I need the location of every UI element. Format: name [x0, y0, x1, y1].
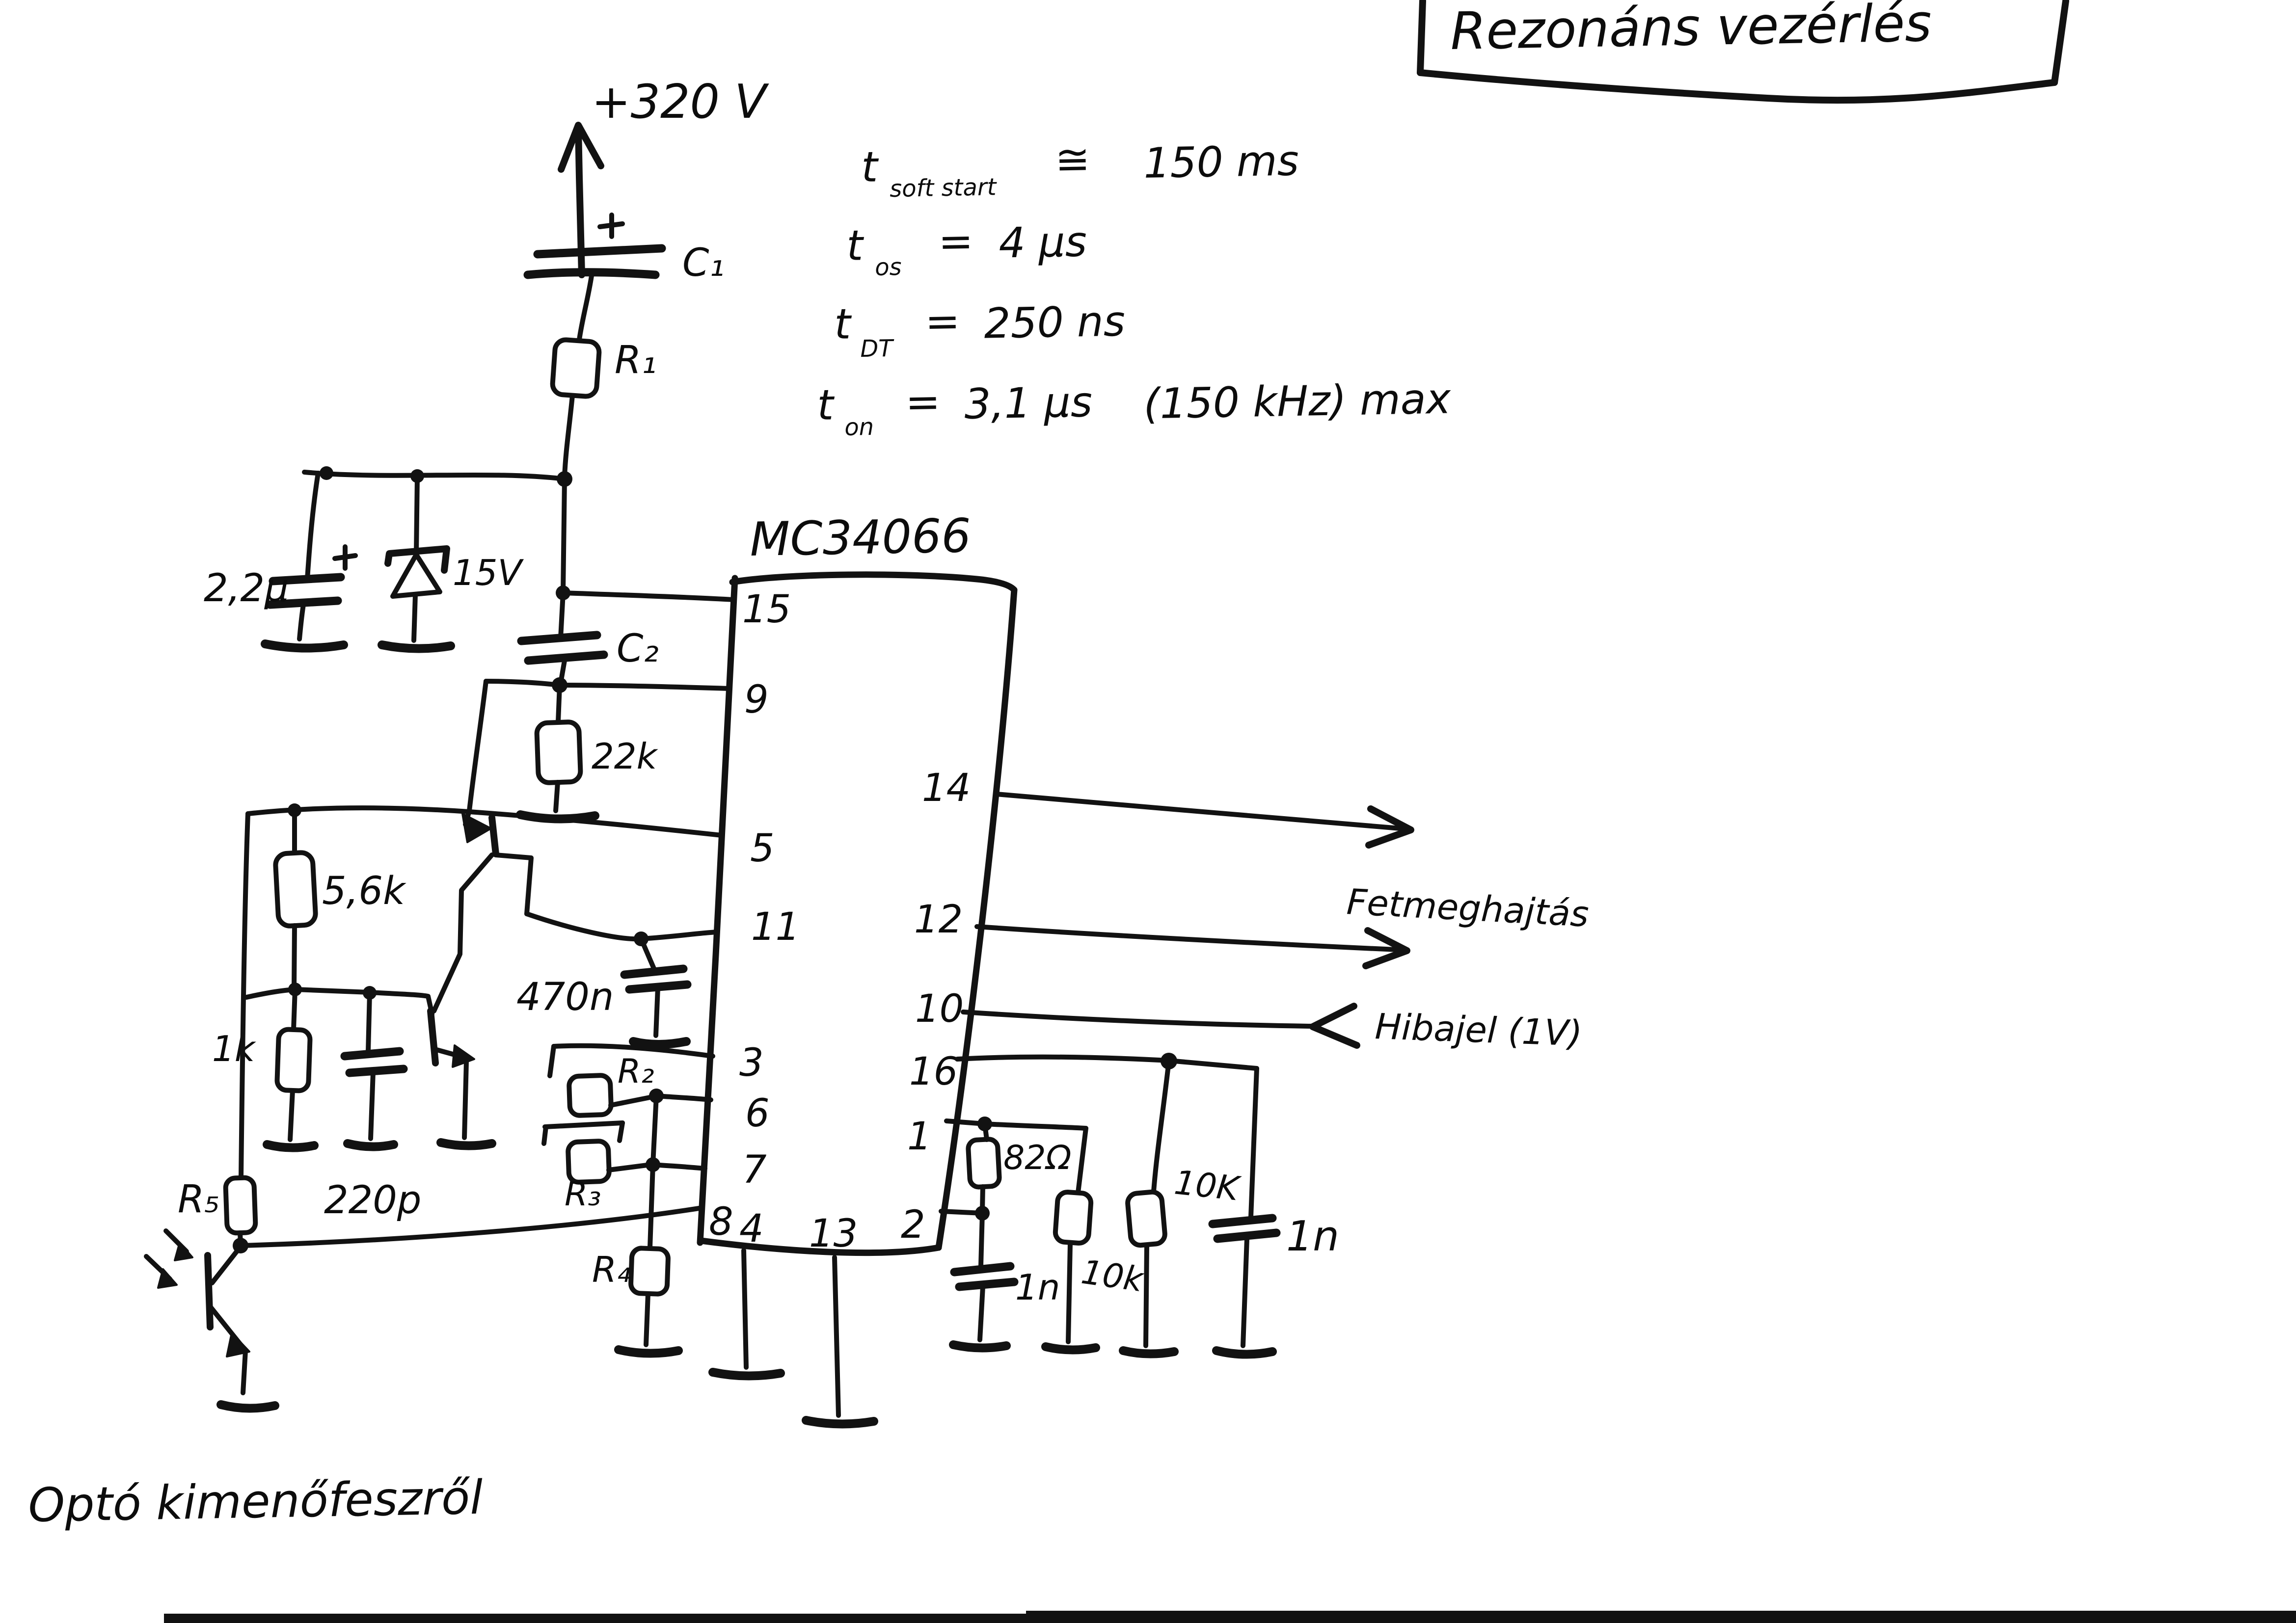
wire-zener-gnd [414, 595, 415, 640]
wire-22k-gnd [556, 782, 558, 811]
r1k-label: 1k [212, 1028, 257, 1069]
q1-collector-zig [496, 855, 531, 914]
wire-10ka-top [1078, 1128, 1086, 1193]
pin-label-7: 7 [742, 1148, 767, 1192]
wire-56k-bottom [294, 926, 295, 988]
resistor-10k-a [1055, 1192, 1092, 1244]
left-arrow-icon [1313, 1006, 1357, 1045]
pin-label-3: 3 [739, 1041, 764, 1085]
pin-label-2: 2 [901, 1203, 925, 1247]
wire-1k-gnd [290, 1091, 293, 1140]
note-dead-time: t DT = 250 ns [834, 294, 1126, 363]
ground-icon [713, 1372, 781, 1376]
wire-pin16 [957, 1057, 1257, 1068]
note1-subscript: soft start [890, 173, 998, 203]
ground-icon [267, 1144, 314, 1148]
wire-pin12-out [977, 927, 1397, 950]
cap220p-plate-top [345, 1051, 400, 1056]
note4-extra: (150 kHz) max [1143, 374, 1452, 428]
ground-icon [348, 1144, 394, 1147]
pin-label-1: 1 [907, 1115, 932, 1159]
r5-label: R₅ [178, 1177, 219, 1222]
r56k-label: 5,6k [322, 869, 406, 913]
wire-cap22-gnd [299, 605, 303, 639]
error-signal-label: Hibajel (1V) [1374, 1006, 1583, 1054]
timing-notes: t soft start ≅ 150 ms t os = 4 μs t DT =… [817, 132, 1452, 442]
wire-1na-gnd [980, 1287, 983, 1340]
wire-pin9 [560, 685, 730, 689]
aux-supply-branch: 2,2μ 15V [204, 466, 565, 649]
resistor-10k-b [1127, 1191, 1166, 1246]
r22k-label: 22k [592, 736, 659, 777]
r10kb-label: 10K [1172, 1163, 1243, 1209]
wire-10kb-top [1154, 1061, 1169, 1192]
wire-pin14-out [997, 794, 1400, 828]
r82-label: 82Ω [1003, 1139, 1072, 1177]
wire-cap22-top [307, 473, 318, 579]
cap22-label: 2,2μ [204, 566, 289, 611]
wire-1nb-top [1251, 1068, 1257, 1217]
note4-operator: = [905, 378, 941, 427]
wire-r1-node [565, 396, 572, 477]
wire-r4-top [650, 1165, 653, 1248]
wire-10ka-gnd [1068, 1244, 1070, 1342]
c1-plate-top [538, 248, 662, 254]
pin-label-14: 14 [922, 766, 971, 810]
wire-node-q1 [486, 681, 560, 685]
note2-value: 4 μs [999, 217, 1087, 267]
c2-plate-top [521, 635, 597, 641]
ic-box-left [700, 578, 735, 1243]
pin-label-10: 10 [915, 987, 964, 1031]
note2-operator: = [938, 217, 974, 266]
c2-branch: C₂ 22k [520, 627, 659, 819]
pin-label-13: 13 [809, 1212, 858, 1256]
c220p-label: 220p [324, 1178, 421, 1223]
pin-label-6: 6 [745, 1091, 770, 1136]
wire-220p-top [368, 993, 370, 1051]
ground-icon [619, 1350, 678, 1354]
q2-emitter-arrow-icon [453, 1045, 474, 1067]
wire-pin7 [653, 1165, 705, 1169]
ground-icon [441, 1143, 492, 1146]
r10ka-label: 10k [1079, 1253, 1147, 1300]
fet-drive-label: Fetmeghajtás [1346, 881, 1590, 935]
oscillator-rc-cluster: 1n 10K 10k 82Ω 1n [941, 1053, 1339, 1355]
cap1nb-plate-top [1213, 1218, 1272, 1224]
wire-470n-gnd [656, 987, 658, 1036]
wire-q1-q2 [434, 855, 492, 1011]
r4-label: R₄ [592, 1249, 631, 1290]
pin-label-8: 8 [709, 1200, 733, 1244]
ic-ground-pins [713, 1251, 874, 1424]
wire-1na-top [981, 1213, 982, 1266]
plus-icon [335, 547, 355, 568]
wire-q2-gnd [464, 1061, 466, 1138]
note-soft-start: t soft start ≅ 150 ms [861, 132, 1299, 203]
resistor-22k [537, 722, 581, 783]
wire-c1-r1 [579, 276, 592, 340]
pin-label-5: 5 [750, 826, 775, 871]
supply-rail: +320 V [561, 75, 769, 275]
wire-pin2 [941, 1211, 982, 1213]
cap1na-plate-top [954, 1266, 1010, 1272]
zener-diode-icon [393, 555, 440, 596]
ground-icon [221, 1405, 275, 1409]
note3-operator: = [925, 297, 961, 346]
wire-220p-gnd [371, 1072, 373, 1139]
pin-label-11: 11 [751, 905, 800, 949]
resistor-56k [275, 852, 316, 927]
note2-subscript: os [875, 253, 902, 281]
ground-icon [265, 644, 344, 648]
ground-icon [1216, 1351, 1272, 1355]
supply-voltage-label: +320 V [592, 75, 769, 129]
cap220p-plate-bottom [350, 1069, 404, 1073]
wire-pin1 [946, 1121, 1086, 1128]
wire-pin11 [527, 914, 717, 939]
wire-pin13-gnd [835, 1257, 838, 1415]
title-box-left-edge [1420, 1, 1423, 73]
timing-resistors: R₂ R₃ R₄ [544, 1046, 713, 1354]
q1-emitter-arrow-icon [462, 814, 491, 842]
wire-base-rail [246, 989, 432, 1014]
ground-icon [382, 645, 451, 649]
schematic-title: Rezonáns vezérlés [1450, 0, 1932, 61]
resistor-r4 [630, 1248, 668, 1295]
pin-label-4: 4 [739, 1207, 764, 1251]
c1nb-label: 1n [1286, 1212, 1339, 1261]
cap1na-plate-bottom [959, 1282, 1014, 1287]
junction-dot [320, 466, 333, 480]
r3-label: R₃ [565, 1175, 601, 1214]
wire-node-node [563, 479, 565, 592]
wire-r2-left [550, 1046, 554, 1076]
resistor-r1 [552, 339, 600, 397]
title-box: Rezonáns vezérlés [1420, 0, 2066, 100]
wire-r2-pin6 [611, 1096, 655, 1105]
pin-label-16: 16 [909, 1050, 958, 1094]
wire-pin10-in [963, 1012, 1312, 1026]
pin-label-15: 15 [742, 587, 791, 632]
pin-label-12: 12 [914, 898, 963, 942]
wire-opto-collector [212, 1247, 241, 1283]
note1-operator: ≅ [1054, 135, 1090, 185]
note-one-shot: t os = 4 μs [846, 215, 1088, 282]
opto-transistor: Optó kimenőfeszről [27, 1231, 483, 1533]
ground-icon [1046, 1347, 1096, 1350]
resistor-r5 [225, 1177, 256, 1233]
wire-pin4-gnd [744, 1251, 746, 1367]
scan-edge-bar-thick [1026, 1611, 2296, 1623]
input-column: C₁ R₁ [528, 215, 725, 638]
note4-value: 3,1 μs [964, 378, 1093, 429]
wire-q1-drop [465, 681, 486, 825]
r2-label: R₂ [618, 1052, 654, 1091]
resistor-1k [277, 1029, 310, 1091]
note3-subscript: DT [860, 335, 895, 363]
note-on-time: t on = 3,1 μs (150 kHz) max [817, 369, 1452, 442]
wire-r3-drop [620, 1123, 622, 1141]
opto-source-label: Optó kimenőfeszről [27, 1471, 483, 1533]
ground-icon [633, 1041, 686, 1044]
c470n-label: 470n [516, 975, 614, 1019]
ic-name-label: MC34066 [749, 509, 971, 567]
wire-pin6 [656, 1096, 711, 1100]
wire-node-c2 [561, 593, 563, 638]
title-box-bottom-edge [1420, 73, 2054, 100]
wire-node-22k [558, 685, 560, 721]
note2-symbol: t [846, 221, 865, 270]
wire-10kb-gnd [1146, 1246, 1147, 1346]
note1-value: 150 ms [1143, 136, 1299, 188]
ground-icon [806, 1420, 874, 1424]
cap470n-plate-top [624, 969, 683, 975]
wire-pin8 [241, 1208, 699, 1246]
r1-label: R₁ [615, 338, 656, 382]
schematic-canvas: Rezonáns vezérlés t soft start ≅ 150 ms … [0, 0, 2296, 1623]
c2-label: C₂ [617, 627, 659, 671]
wire-1k-top [294, 989, 295, 1030]
wire-r2r3-vertical [653, 1096, 656, 1164]
q2-bar [431, 1011, 435, 1063]
note3-symbol: t [834, 300, 853, 349]
wire-zener-top [416, 476, 417, 554]
resistor-82 [968, 1139, 1000, 1187]
output-wires: Fetmeghajtás Hibajel (1V) [963, 794, 1590, 1054]
note1-symbol: t [861, 143, 880, 192]
title-box-right-edge [2054, 1, 2066, 82]
plus-icon [600, 215, 622, 237]
wire-opto-gnd [243, 1351, 245, 1393]
c1-label: C₁ [682, 241, 725, 285]
wire-top-left [304, 472, 565, 479]
c1na-label: 1n [1015, 1267, 1060, 1308]
opto-bar [208, 1255, 210, 1327]
ground-icon [1123, 1351, 1174, 1354]
wire-r4-gnd [646, 1294, 648, 1345]
wire-470n-top [641, 939, 655, 971]
pin-label-9: 9 [744, 678, 769, 722]
wire-pin15 [563, 593, 734, 600]
wire-1nb-gnd [1243, 1239, 1247, 1346]
wire-r3-pin7 [609, 1165, 651, 1170]
zener-label: 15V [453, 552, 524, 593]
ground-icon [953, 1345, 1006, 1348]
resistor-r2 [569, 1075, 612, 1116]
q1-bar [492, 818, 496, 854]
note4-symbol: t [817, 381, 836, 430]
scanned-schematic-page: Rezonáns vezérlés t soft start ≅ 150 ms … [0, 0, 2296, 1623]
note4-subscript: on [844, 413, 874, 441]
note3-value: 250 ns [984, 297, 1126, 348]
